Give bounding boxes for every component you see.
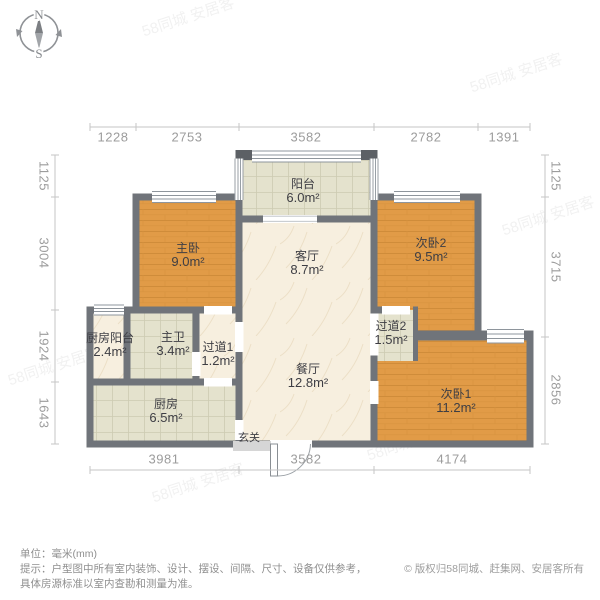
floorplan-svg (0, 0, 600, 600)
dim-top-4: 2782 (411, 130, 442, 145)
dim-bottom-3: 4174 (437, 452, 468, 467)
dim-right-3: 2856 (549, 375, 564, 406)
dim-top-2: 2753 (172, 130, 203, 145)
dim-top-3: 3582 (291, 130, 322, 145)
room-label-hallway1: 过道1 1.2m² (201, 341, 234, 369)
room-label-dining-room: 餐厅 12.8m² (288, 363, 328, 391)
compass-south-label: S (35, 46, 42, 61)
room-label-entrance: 玄关 (238, 429, 260, 445)
dim-right-2: 3715 (549, 252, 564, 283)
dim-bottom-1: 3981 (149, 452, 180, 467)
room-label-master-bedroom: 主卧 9.0m² (171, 242, 204, 270)
compass-arrow-east (56, 29, 63, 37)
room-label-balcony: 阳台 6.0m² (286, 178, 319, 206)
floorplan-image: 58同城 安居客 58同城 安居客 58同城 安居客 58同城 安居客 58同城… (0, 0, 600, 600)
dim-top-1: 1228 (98, 130, 129, 145)
door-leaf (271, 444, 278, 476)
compass-arrow-west (16, 29, 23, 37)
unit-note: 单位：毫米(mm) (20, 547, 97, 562)
dim-left-2: 3004 (37, 238, 52, 269)
copyright-text: © 版权归58同城、赶集网、安居客所有 (404, 561, 584, 576)
room-label-bedroom2: 次卧2 9.5m² (414, 237, 447, 265)
disclaimer-line1: 提示：户型图中所有室内装饰、设计、摆设、间隔、尺寸、设备仅供参考， (20, 562, 367, 577)
dim-left-1: 1125 (37, 161, 52, 191)
compass-icon: N S (6, 2, 72, 68)
room-label-master-bath: 主卫 3.4m² (156, 331, 189, 359)
room-label-hallway2: 过道2 1.5m² (374, 320, 407, 348)
dim-right-1: 1125 (549, 161, 564, 191)
disclaimer-line2: 具体房源标准以室内查勘和测量为准。 (20, 577, 199, 592)
dim-bottom-2: 3582 (291, 452, 322, 467)
dim-left-3: 1924 (37, 331, 52, 362)
room-label-kitchen: 厨房 6.5m² (149, 398, 182, 426)
dim-top-5: 1391 (489, 130, 520, 145)
room-label-kitchen-balcony: 厨房阳台 2.4m² (86, 332, 134, 360)
room-label-living-room: 客厅 8.7m² (290, 250, 323, 278)
dim-left-4: 1643 (37, 398, 52, 429)
compass-north-label: N (34, 7, 44, 22)
room-label-bedroom1: 次卧1 11.2m² (436, 388, 476, 416)
